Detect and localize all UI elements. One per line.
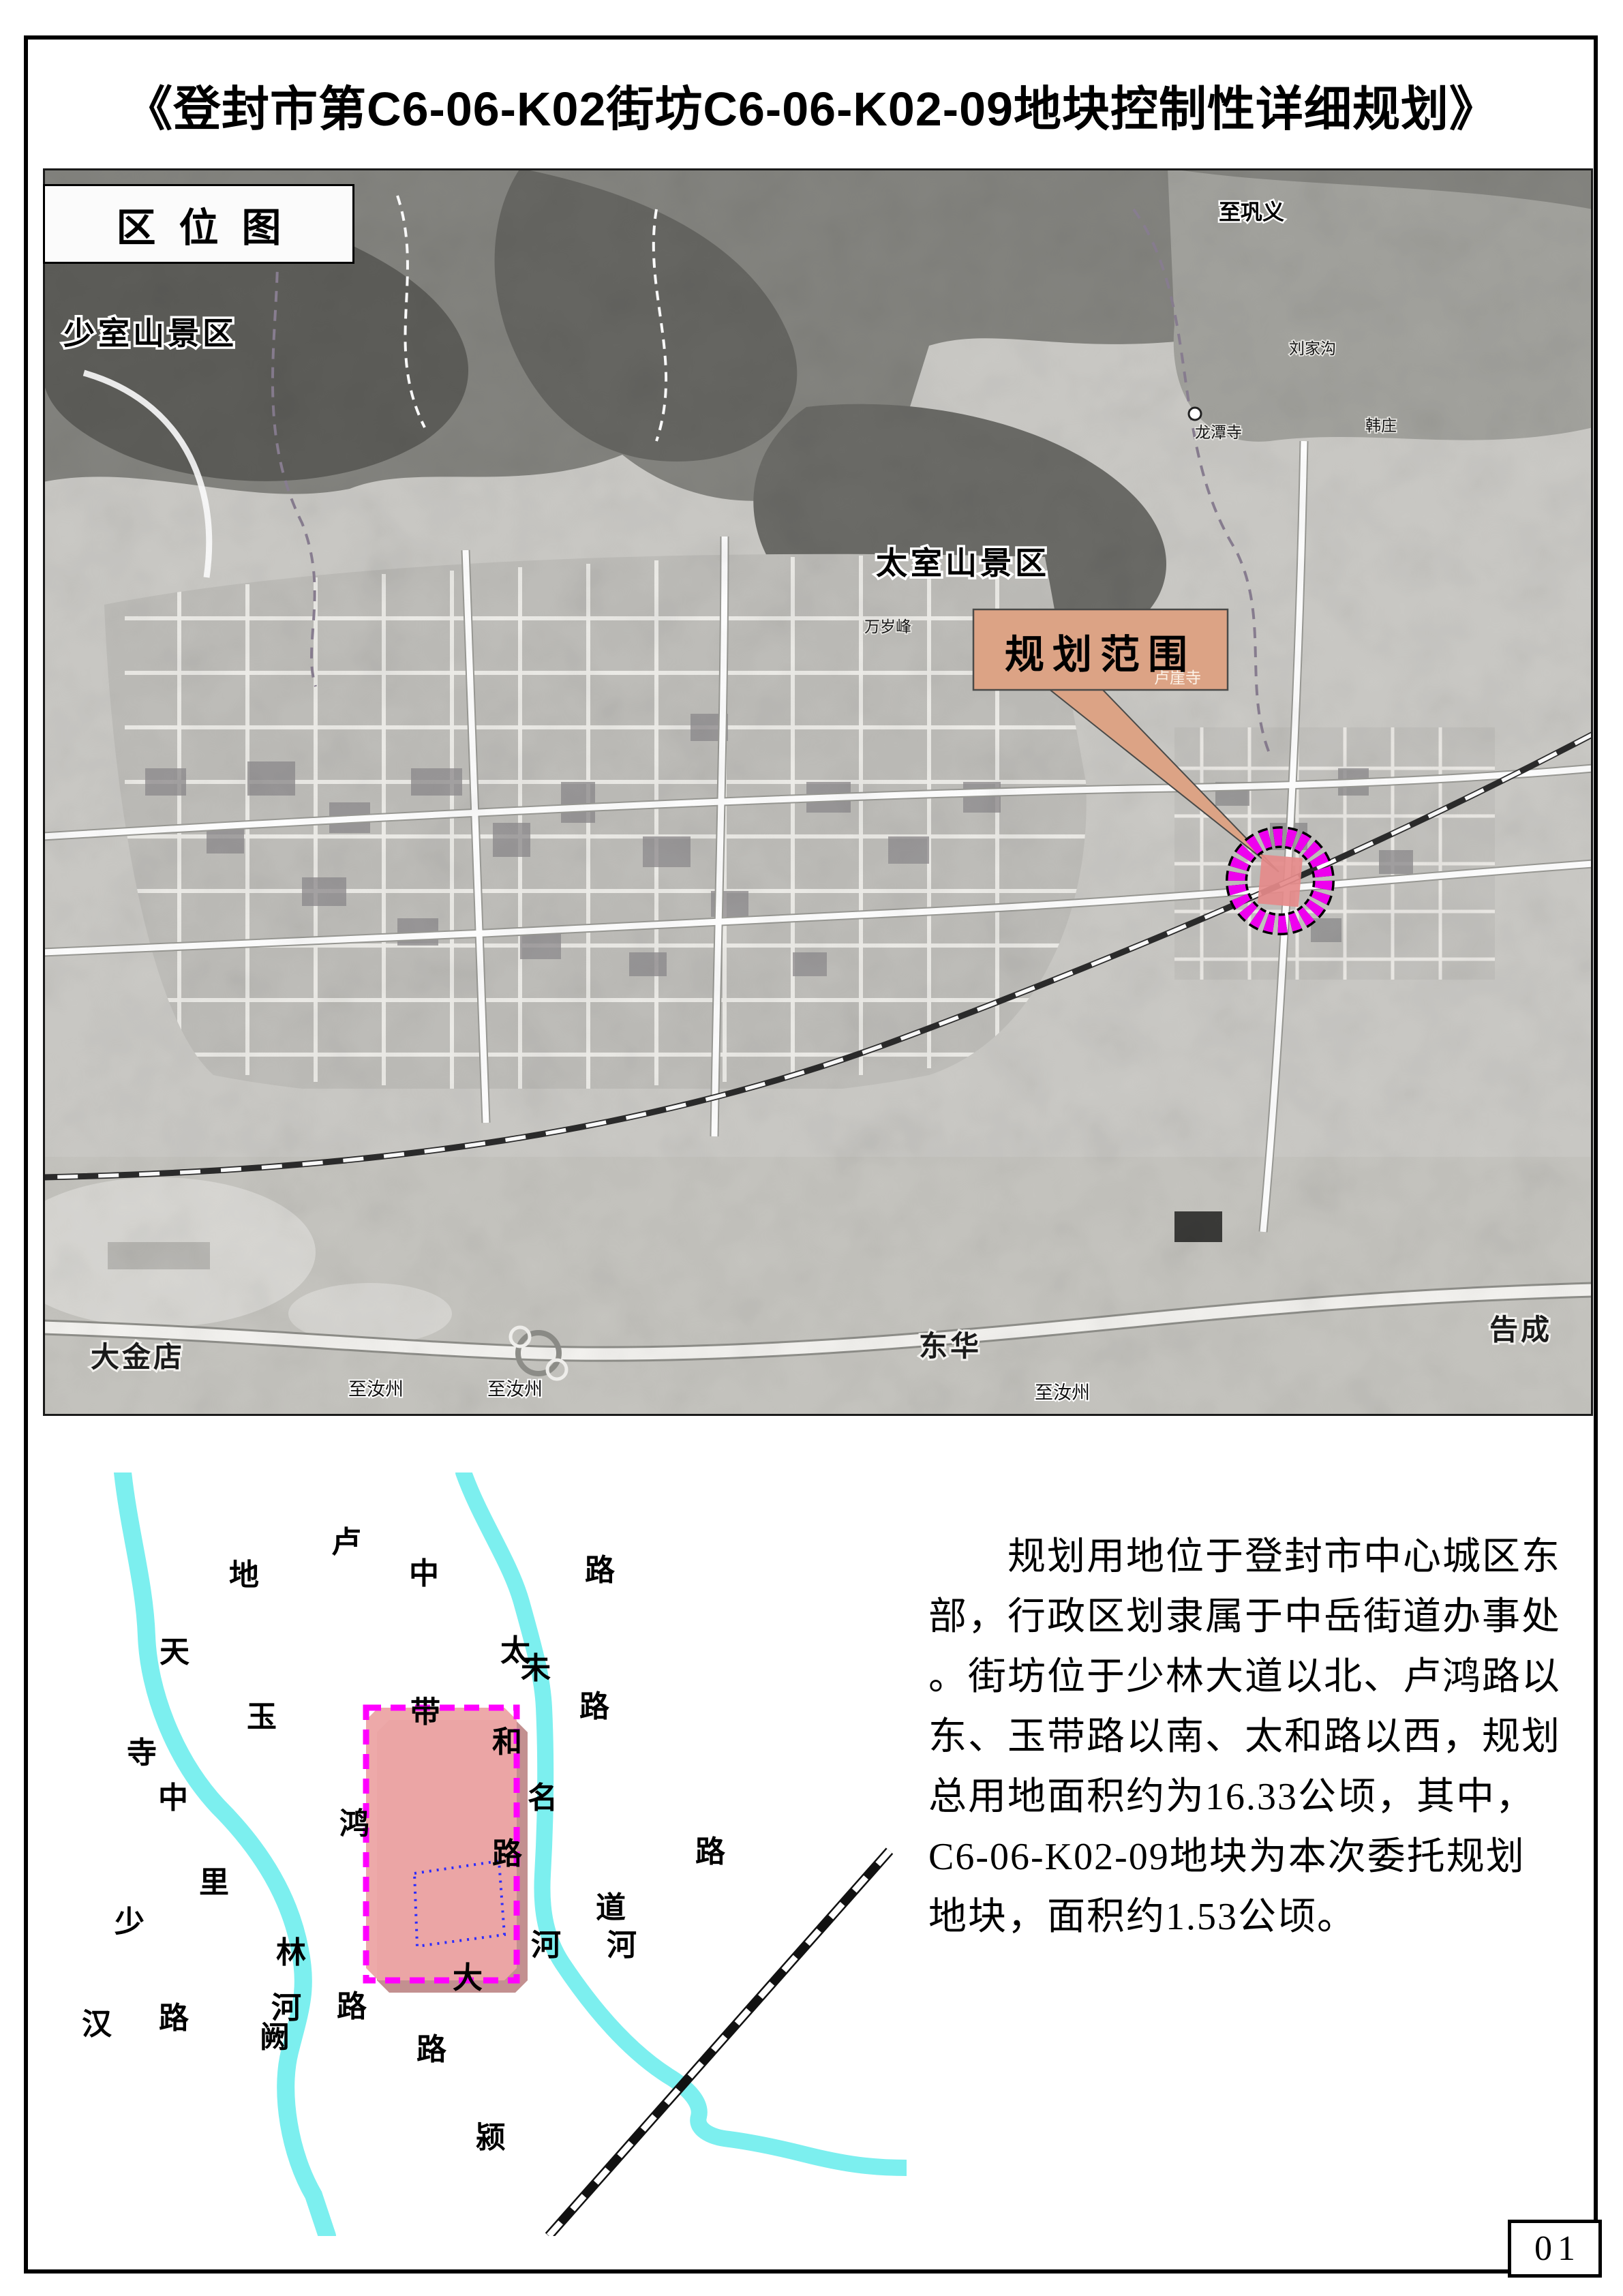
location-map: 少室山景区太室山景区至巩义刘家沟龙潭寺韩庄万岁峰卢崖寺规划范围大金店东华告成至汝… <box>43 168 1593 1416</box>
label-gaocheng: 告成 <box>1489 1314 1552 1346</box>
road-name-char: 天 <box>160 1635 189 1669</box>
road-name-char: 道 <box>596 1891 626 1924</box>
label-to-ruzhou-1: 至汝州 <box>348 1379 404 1400</box>
road-name-char: 鸿 <box>339 1807 369 1841</box>
location-map-artwork <box>43 168 1593 1416</box>
map-corner-label-box: 区位图 <box>43 184 354 264</box>
road-name-char: 卢 <box>331 1526 361 1559</box>
planning-block-highlight <box>1258 855 1303 907</box>
road-name-char: 路 <box>337 1990 367 2023</box>
road-name-char: 路 <box>585 1554 616 1587</box>
road-name-char: 中 <box>158 1781 188 1815</box>
road-name-char: 少 <box>115 1905 145 1939</box>
road-name-char: 寺 <box>127 1736 157 1770</box>
road-name-char: 未 <box>521 1652 551 1685</box>
road-name-char: 路 <box>579 1690 610 1723</box>
callout-planning-scope-text: 规划范围 <box>1005 633 1196 677</box>
road-name-char: 名 <box>528 1781 558 1815</box>
road-name-char: 河 <box>607 1929 637 1962</box>
road-name-char: 林 <box>276 1936 306 1969</box>
label-taishishan-scenic-area: 太室山景区 <box>876 545 1050 581</box>
road-name-char: 路 <box>492 1837 523 1871</box>
road-name-char: 大 <box>453 1961 483 1995</box>
page-number: 01 <box>1534 2229 1581 2269</box>
map-corner-label: 区位图 <box>116 196 304 253</box>
description-line: 地块，面积约1.53公顷。 <box>928 1887 1596 1947</box>
description-line: 规划用地位于登封市中心城区东 <box>928 1527 1596 1587</box>
label-shaoshishan-scenic-area: 少室山景区 <box>63 316 237 351</box>
detail-map: 地中路卢天太未玉带路寺和中鸿名里路路少林大道河河路河路汉阙路颍 <box>55 1472 907 2236</box>
label-to-ruzhou-2: 至汝州 <box>487 1379 543 1400</box>
road-name-char: 路 <box>159 2002 189 2035</box>
label-to-ruzhou-3: 至汝州 <box>1035 1383 1090 1403</box>
road-name-char: 汉 <box>82 2008 112 2041</box>
road-name-char: 颍 <box>476 2121 506 2154</box>
road-name-char: 河 <box>271 1991 301 2025</box>
road-name-char: 路 <box>416 2033 447 2066</box>
description-line: 总用地面积约为16.33公顷，其中， <box>928 1767 1596 1827</box>
road-name-char: 路 <box>695 1835 726 1869</box>
road-name-char: 中 <box>409 1557 439 1590</box>
road-name-char: 带 <box>410 1695 440 1729</box>
page-title: 《登封市第C6-06-K02街坊C6-06-K02-09地块控制性详细规划》 <box>41 71 1581 140</box>
description-paragraph: 规划用地位于登封市中心城区东 部，行政区划隶属于中岳街道办事处 。街坊位于少林大… <box>928 1527 1596 1947</box>
page-number-box: 01 <box>1508 2220 1602 2278</box>
road-name-char: 里 <box>199 1866 229 1899</box>
plan-document-page: { "page": { "title": "《登封市第C6-06-K02街坊C6… <box>0 0 1623 2296</box>
label-longtansi: 龙潭寺 <box>1195 423 1242 441</box>
road-name-char: 玉 <box>247 1700 277 1734</box>
label-wansuifeng: 万岁峰 <box>864 618 911 635</box>
description-line: 。街坊位于少林大道以北、卢鸿路以 <box>928 1647 1596 1707</box>
description-line: 东、玉带路以南、太和路以西，规划 <box>928 1707 1596 1767</box>
label-liujiagou: 刘家沟 <box>1289 339 1336 357</box>
label-hanzhuang: 韩庄 <box>1365 417 1397 434</box>
road-name-char: 地 <box>229 1558 259 1592</box>
label-to-gongyi: 至巩义 <box>1219 200 1284 224</box>
road-name-char: 和 <box>492 1725 522 1759</box>
road-name-char: 阙 <box>260 2021 290 2054</box>
road-name-char: 河 <box>531 1929 561 1962</box>
label-donghua: 东华 <box>919 1330 982 1362</box>
description-line: 部，行政区划隶属于中岳街道办事处 <box>928 1587 1596 1647</box>
temple-marker <box>1189 408 1201 420</box>
label-dajindian: 大金店 <box>91 1341 185 1373</box>
description-line: C6-06-K02-09地块为本次委托规划 <box>928 1827 1596 1887</box>
